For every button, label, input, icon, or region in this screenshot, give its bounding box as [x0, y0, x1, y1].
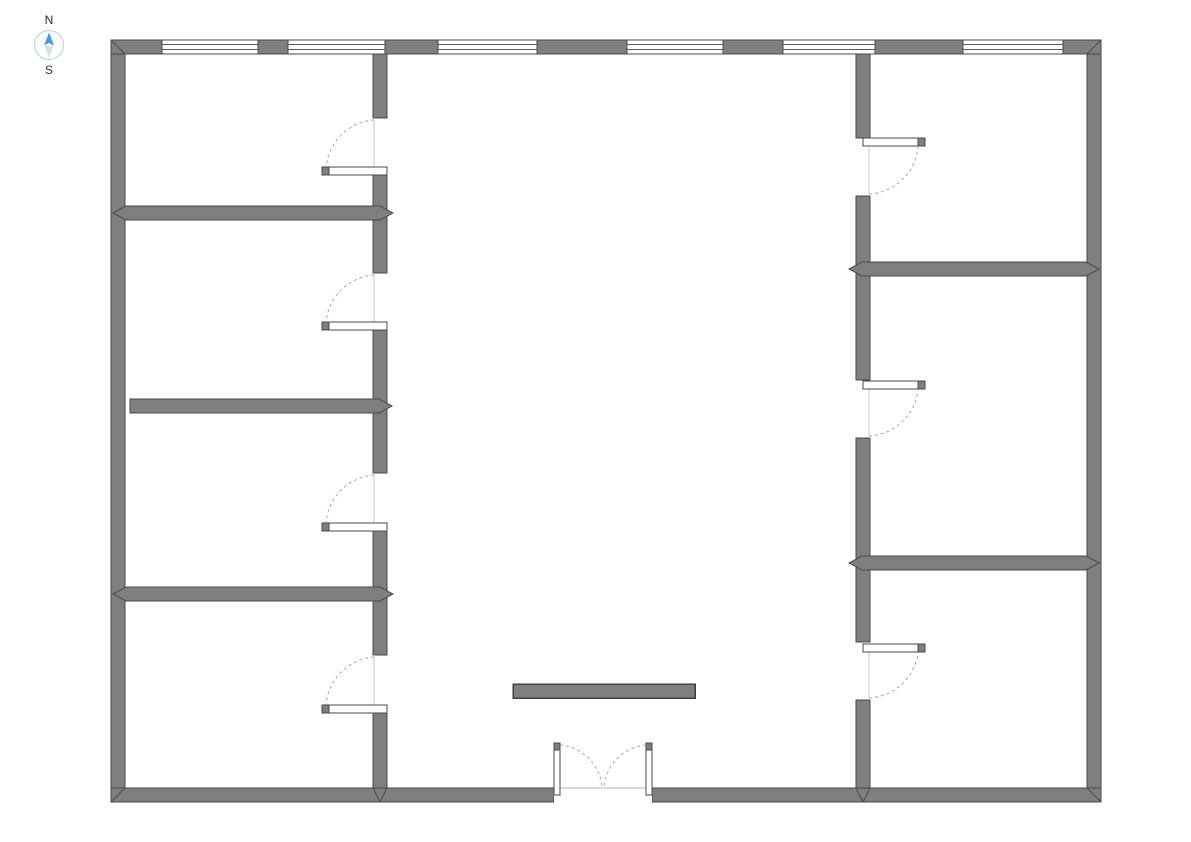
interior-wall-right-segment-1: [856, 54, 870, 138]
entrance-double-door-left-leaf-swing-arc: [560, 745, 602, 787]
door-room-left-3-leaf: [322, 523, 387, 531]
exterior-wall-right: [1087, 40, 1101, 802]
divider-wall-right-1: [849, 262, 1099, 276]
window-6: [963, 40, 1063, 54]
door-room-left-1-tip: [322, 167, 329, 175]
entrance-double-door-left-leaf-tip: [554, 743, 560, 750]
window-2: [288, 40, 385, 54]
compass-north-label: N: [45, 13, 54, 27]
door-room-left-2-leaf: [322, 322, 387, 330]
window-1: [162, 40, 258, 54]
compass: N S: [30, 13, 68, 77]
exterior-wall-top-segment-3: [385, 40, 438, 54]
exterior-wall-top-segment-4: [537, 40, 627, 54]
interior-wall-left-segment-1: [373, 54, 387, 118]
door-room-left-3-swing-arc: [326, 475, 374, 524]
interior-wall-right-segment-4: [856, 700, 870, 788]
door-room-right-1-swing-arc: [869, 147, 918, 194]
exterior-wall-left: [111, 40, 125, 802]
door-room-left-1-swing-arc: [326, 120, 374, 168]
door-room-left-4-leaf: [322, 705, 387, 713]
door-room-right-2-leaf: [863, 381, 925, 389]
door-room-right-3-leaf: [863, 644, 925, 652]
door-room-left-1-leaf: [322, 167, 387, 175]
divider-wall-left-1: [113, 206, 393, 220]
exterior-wall-top-segment-2: [258, 40, 288, 54]
compass-rose-icon: [33, 29, 65, 61]
divider-wall-right-2: [849, 556, 1099, 570]
door-room-left-4-swing-arc: [326, 657, 374, 706]
interior-wall-left-segment-5: [373, 713, 387, 788]
window-3: [438, 40, 537, 54]
door-room-right-2-swing-arc: [869, 390, 918, 436]
interior-wall-right-segment-3: [856, 438, 870, 642]
exterior-wall-top-segment-5: [723, 40, 783, 54]
door-room-right-1-leaf: [863, 138, 925, 146]
door-room-left-4-tip: [322, 705, 329, 713]
compass-south-label: S: [45, 63, 53, 77]
divider-wall-left-2: [130, 399, 392, 413]
door-room-right-3-tip: [918, 644, 925, 652]
entrance-opening: [554, 788, 652, 802]
floor-plan-page: N S: [0, 0, 1191, 842]
interior-wall-right-segment-2: [856, 196, 870, 380]
entrance-double-door-right-leaf-leaf: [646, 743, 652, 795]
door-room-right-1-tip: [918, 138, 925, 146]
door-room-right-3-swing-arc: [869, 653, 918, 698]
door-room-right-2-tip: [918, 381, 925, 389]
door-room-left-3-tip: [322, 523, 329, 531]
door-room-left-2-tip: [322, 322, 329, 330]
exterior-wall-bottom-segment-2: [652, 788, 1101, 802]
window-4: [627, 40, 723, 54]
entrance-double-door-right-leaf-tip: [646, 743, 652, 750]
divider-wall-left-3: [113, 587, 393, 601]
interior-wall-left-segment-2: [373, 175, 387, 273]
exterior-wall-bottom-segment-1: [111, 788, 554, 802]
entrance-double-door-right-leaf-swing-arc: [604, 745, 646, 787]
exterior-wall-top-segment-6: [875, 40, 963, 54]
floor-plan-canvas: [0, 0, 1191, 842]
window-5: [783, 40, 875, 54]
table: [513, 684, 695, 698]
entrance-double-door-left-leaf-leaf: [554, 743, 560, 795]
door-room-left-2-swing-arc: [326, 275, 374, 323]
exterior-wall-top-segment-7: [1063, 40, 1101, 54]
